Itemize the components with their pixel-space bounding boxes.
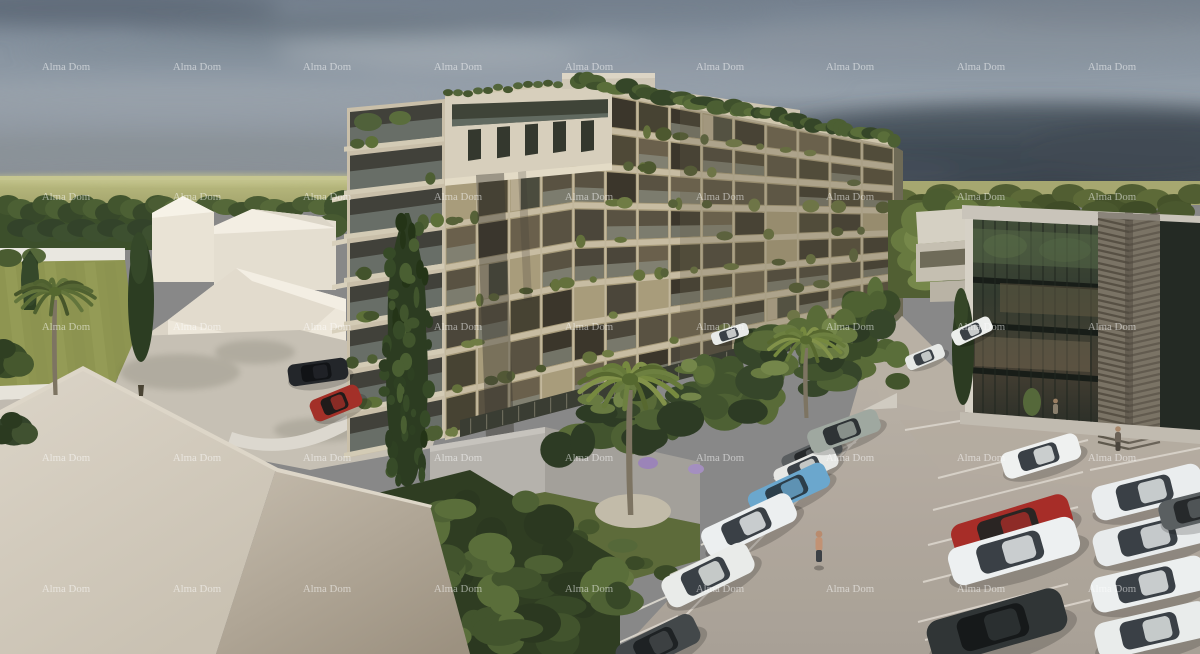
- svg-text:Alma Dom: Alma Dom: [434, 583, 483, 595]
- svg-text:Alma Dom: Alma Dom: [696, 191, 745, 203]
- svg-text:Alma Dom: Alma Dom: [565, 321, 614, 333]
- svg-text:Alma Dom: Alma Dom: [826, 321, 875, 333]
- svg-text:Alma Dom: Alma Dom: [434, 191, 483, 203]
- svg-text:Alma Dom: Alma Dom: [826, 61, 875, 73]
- svg-text:Alma Dom: Alma Dom: [1088, 61, 1137, 73]
- svg-text:Alma Dom: Alma Dom: [173, 191, 222, 203]
- svg-text:Alma Dom: Alma Dom: [303, 321, 352, 333]
- svg-text:Alma Dom: Alma Dom: [957, 321, 1006, 333]
- svg-text:Alma Dom: Alma Dom: [957, 191, 1006, 203]
- svg-text:Alma Dom: Alma Dom: [42, 583, 91, 595]
- svg-text:Alma Dom: Alma Dom: [303, 61, 352, 73]
- svg-text:Alma Dom: Alma Dom: [173, 452, 222, 464]
- svg-text:Alma Dom: Alma Dom: [1088, 191, 1137, 203]
- svg-text:Alma Dom: Alma Dom: [696, 61, 745, 73]
- svg-text:Alma Dom: Alma Dom: [434, 452, 483, 464]
- svg-text:Alma Dom: Alma Dom: [1088, 452, 1137, 464]
- svg-text:Alma Dom: Alma Dom: [696, 321, 745, 333]
- svg-text:Alma Dom: Alma Dom: [957, 61, 1006, 73]
- svg-text:Alma Dom: Alma Dom: [434, 321, 483, 333]
- svg-text:Alma Dom: Alma Dom: [173, 61, 222, 73]
- svg-text:Alma Dom: Alma Dom: [826, 583, 875, 595]
- svg-text:Alma Dom: Alma Dom: [826, 452, 875, 464]
- svg-text:Alma Dom: Alma Dom: [42, 61, 91, 73]
- svg-text:Alma Dom: Alma Dom: [434, 61, 483, 73]
- svg-text:Alma Dom: Alma Dom: [42, 191, 91, 203]
- svg-text:Alma Dom: Alma Dom: [696, 452, 745, 464]
- svg-text:Alma Dom: Alma Dom: [42, 452, 91, 464]
- svg-text:Alma Dom: Alma Dom: [303, 191, 352, 203]
- svg-text:Alma Dom: Alma Dom: [303, 452, 352, 464]
- svg-text:Alma Dom: Alma Dom: [42, 321, 91, 333]
- svg-text:Alma Dom: Alma Dom: [1088, 583, 1137, 595]
- svg-text:Alma Dom: Alma Dom: [1088, 321, 1137, 333]
- svg-text:Alma Dom: Alma Dom: [826, 191, 875, 203]
- svg-text:Alma Dom: Alma Dom: [957, 583, 1006, 595]
- svg-text:Alma Dom: Alma Dom: [565, 61, 614, 73]
- svg-text:Alma Dom: Alma Dom: [565, 452, 614, 464]
- svg-text:Alma Dom: Alma Dom: [565, 583, 614, 595]
- svg-text:Alma Dom: Alma Dom: [957, 452, 1006, 464]
- svg-text:Alma Dom: Alma Dom: [303, 583, 352, 595]
- svg-text:Alma Dom: Alma Dom: [696, 583, 745, 595]
- svg-text:Alma Dom: Alma Dom: [565, 191, 614, 203]
- svg-text:Alma Dom: Alma Dom: [173, 321, 222, 333]
- svg-text:Alma Dom: Alma Dom: [173, 583, 222, 595]
